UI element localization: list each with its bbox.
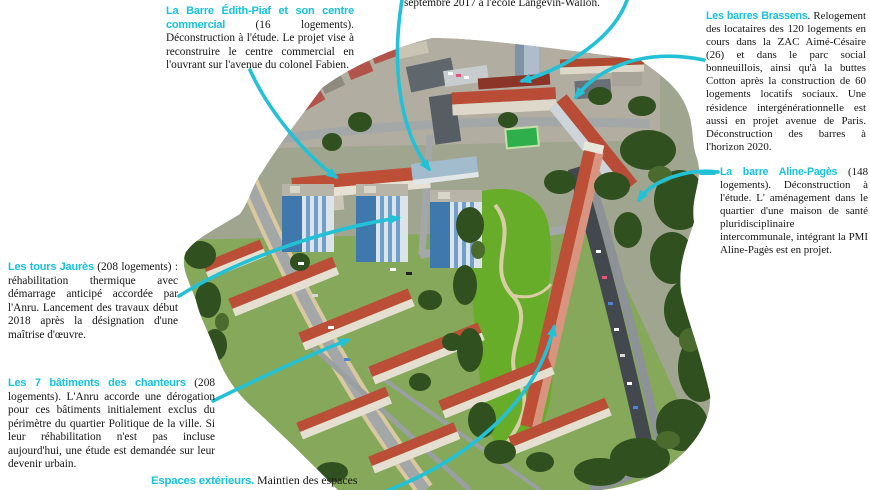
brassens-heading: Les barres Brassens: [706, 10, 807, 22]
aline-pages-dash: [699, 171, 716, 175]
chanteurs-heading: Les 7 bâtiments des chanteurs: [8, 377, 186, 389]
annotation-edith-piaf: La Barre Édith-Piaf et son centre commer…: [166, 5, 354, 73]
annotation-chanteurs: Les 7 bâtiments des chanteurs (208 logem…: [8, 377, 215, 472]
arrow-jaures: [179, 218, 398, 296]
aline-pages-heading: La barre Aline-Pagès: [720, 166, 837, 178]
annotation-espaces: Espaces extérieurs. Maintien des espaces: [151, 473, 451, 489]
annotation-brassens: Les barres Brassens. Relogement des loca…: [706, 10, 866, 154]
annotation-aline-pages: La barre Aline-Pagès (148 logements). Dé…: [720, 166, 868, 258]
espaces-heading: Espaces extérieurs.: [151, 475, 254, 487]
brassens-body: . Relogement des locataires des 120 loge…: [706, 10, 866, 153]
arrow-edith-piaf: [250, 70, 336, 177]
annotation-jaures: Les tours Jaurès (208 logements) : réhab…: [8, 261, 178, 342]
arrow-espaces: [384, 327, 554, 490]
annotation-ecole: septembre 2017 à l'école Langevin-Wallon…: [404, 0, 664, 11]
arrow-ecole-left: [397, 0, 429, 169]
arrow-aline-pages: [639, 171, 718, 200]
ecole-body: septembre 2017 à l'école Langevin-Wallon…: [404, 0, 600, 9]
arrow-brassens: [576, 56, 704, 97]
espaces-body: Maintien des espaces: [254, 473, 357, 487]
chanteurs-body: (208 logements). L'Anru accorde une déro…: [8, 377, 215, 470]
arrow-chanteurs: [213, 340, 348, 401]
jaures-heading: Les tours Jaurès: [8, 261, 94, 273]
aline-pages-body: (148 logements). Déconstruction à l'étud…: [720, 166, 868, 256]
infographic-canvas: La Barre Édith-Piaf et son centre commer…: [0, 0, 870, 490]
